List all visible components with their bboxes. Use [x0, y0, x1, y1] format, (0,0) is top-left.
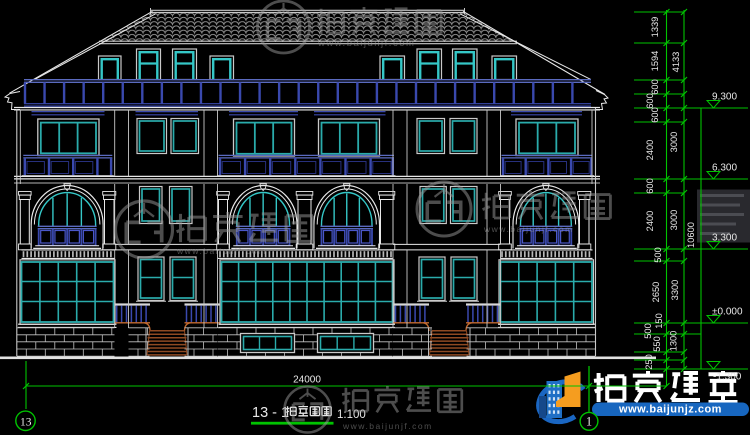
svg-text:150: 150 [654, 313, 664, 329]
svg-text:-1.300: -1.300 [713, 372, 742, 383]
svg-text:2400: 2400 [645, 211, 655, 232]
svg-text:1594: 1594 [650, 51, 660, 72]
svg-text:500: 500 [653, 247, 663, 263]
svg-text:24000: 24000 [293, 375, 321, 386]
svg-text:2400: 2400 [645, 140, 655, 161]
svg-text:1: 1 [586, 415, 592, 429]
svg-text:10600: 10600 [686, 222, 696, 248]
svg-text:www.baijunjf.com: www.baijunjf.com [176, 246, 267, 256]
svg-text:6.300: 6.300 [712, 163, 737, 174]
svg-text:3300: 3300 [670, 280, 680, 301]
svg-text:13: 13 [20, 416, 32, 428]
svg-text:4133: 4133 [671, 52, 681, 73]
svg-text:3000: 3000 [669, 132, 679, 153]
svg-text:600: 600 [645, 93, 655, 109]
svg-text:www.baijunjf.com: www.baijunjf.com [483, 224, 574, 234]
svg-text:www.baijunjf.com: www.baijunjf.com [342, 421, 433, 431]
svg-text:1339: 1339 [650, 17, 660, 38]
svg-text:3.300: 3.300 [712, 233, 737, 244]
svg-text:2650: 2650 [651, 282, 661, 303]
svg-text:600: 600 [650, 107, 660, 123]
svg-text:www.baijunjz.com: www.baijunjz.com [618, 404, 722, 416]
svg-text:600: 600 [650, 79, 660, 95]
svg-text:550: 550 [652, 336, 662, 352]
svg-text:3000: 3000 [669, 210, 679, 231]
svg-text:1300: 1300 [669, 331, 679, 352]
svg-text:9.300: 9.300 [712, 92, 737, 103]
svg-text:250: 250 [644, 354, 654, 370]
svg-text:600: 600 [645, 178, 655, 194]
svg-text:±0.000: ±0.000 [712, 307, 743, 318]
svg-text:www.baijunjf.com: www.baijunjf.com [317, 38, 415, 49]
